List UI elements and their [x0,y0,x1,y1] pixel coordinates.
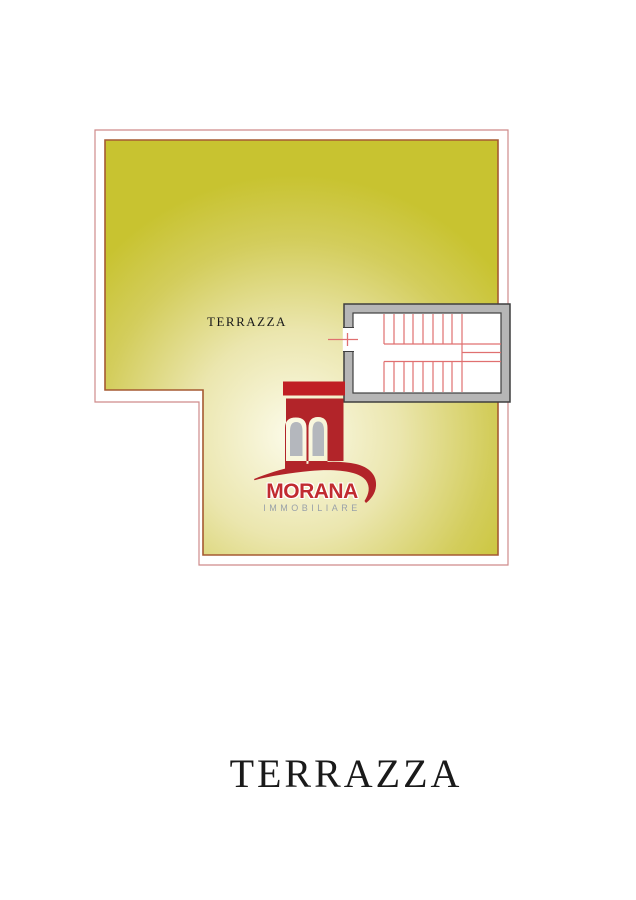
room-label: TERRAZZA [187,314,307,330]
logo-window-right-icon [313,422,325,457]
brand-name: MORANA [252,480,372,504]
brand-subtitle: IMMOBILIARE [252,503,372,513]
logo-window-left-icon [290,422,303,456]
logo-building-cap [283,382,345,396]
floorplan-page: TERRAZZA MORANA IMMOBILIARE TERRAZZA [0,0,636,900]
caption-title: TERRAZZA [186,750,506,797]
staircase [328,304,510,402]
